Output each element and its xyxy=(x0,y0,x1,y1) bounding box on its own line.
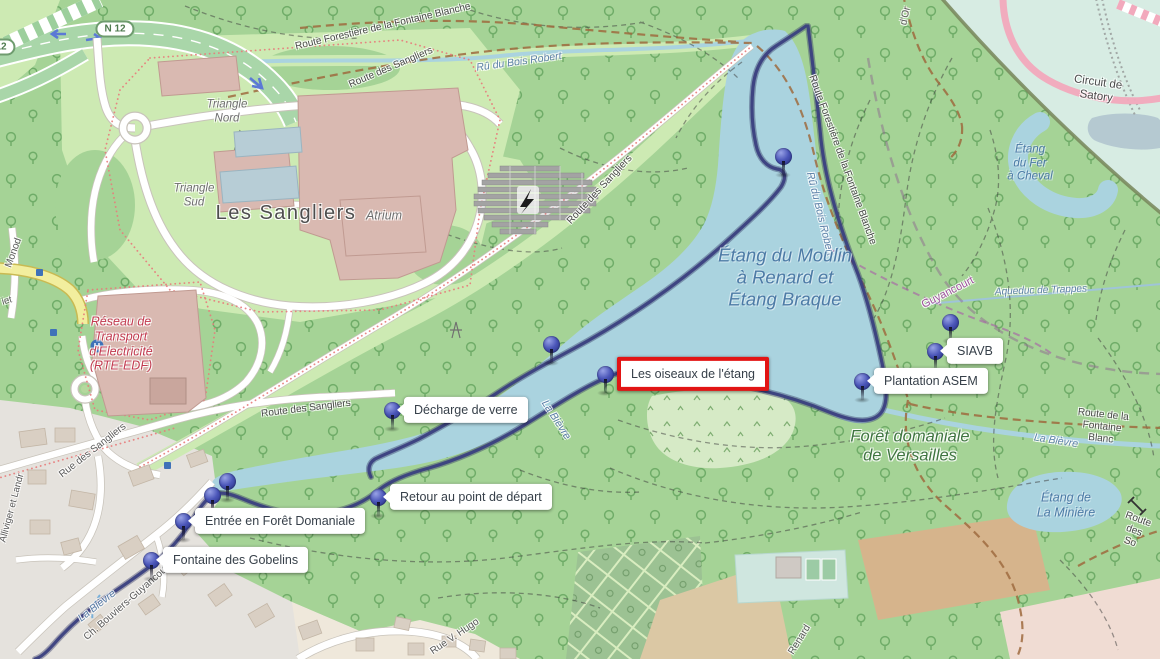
marker-label[interactable]: Plantation ASEM xyxy=(874,368,988,394)
marker-label[interactable]: Décharge de verre xyxy=(404,397,528,423)
marker-label-text: Les oiseaux de l'étang xyxy=(631,367,755,381)
parking-icon xyxy=(36,269,43,276)
marker-pin-icon[interactable] xyxy=(597,366,614,383)
marker-pin-icon[interactable] xyxy=(204,487,221,504)
marker-label[interactable]: Fontaine des Gobelins xyxy=(163,547,308,573)
marker-label-text: SIAVB xyxy=(957,344,993,358)
map-canvas[interactable]: H Route Forestière de la Fontaine Blanch… xyxy=(0,0,1160,659)
parking-icon xyxy=(50,329,57,336)
marker-pin-icon[interactable] xyxy=(543,336,560,353)
marker-label[interactable]: Retour au point de départ xyxy=(390,484,552,510)
bus-stop-icon xyxy=(164,462,171,469)
marker-label-highlighted[interactable]: Les oiseaux de l'étang xyxy=(617,357,769,391)
marker-pin-icon[interactable] xyxy=(219,473,236,490)
marker-label-text: Retour au point de départ xyxy=(400,490,542,504)
marker-label[interactable]: Entrée en Forêt Domaniale xyxy=(195,508,365,534)
marker-pin-icon[interactable] xyxy=(775,148,792,165)
marker-label-text: Entrée en Forêt Domaniale xyxy=(205,514,355,528)
marker-pin-icon[interactable] xyxy=(942,314,959,331)
marker-label-text: Fontaine des Gobelins xyxy=(173,553,298,567)
marker-label-text: Plantation ASEM xyxy=(884,374,978,388)
marker-label-text: Décharge de verre xyxy=(414,403,518,417)
svg-text:H: H xyxy=(94,342,101,352)
marker-label[interactable]: SIAVB xyxy=(947,338,1003,364)
